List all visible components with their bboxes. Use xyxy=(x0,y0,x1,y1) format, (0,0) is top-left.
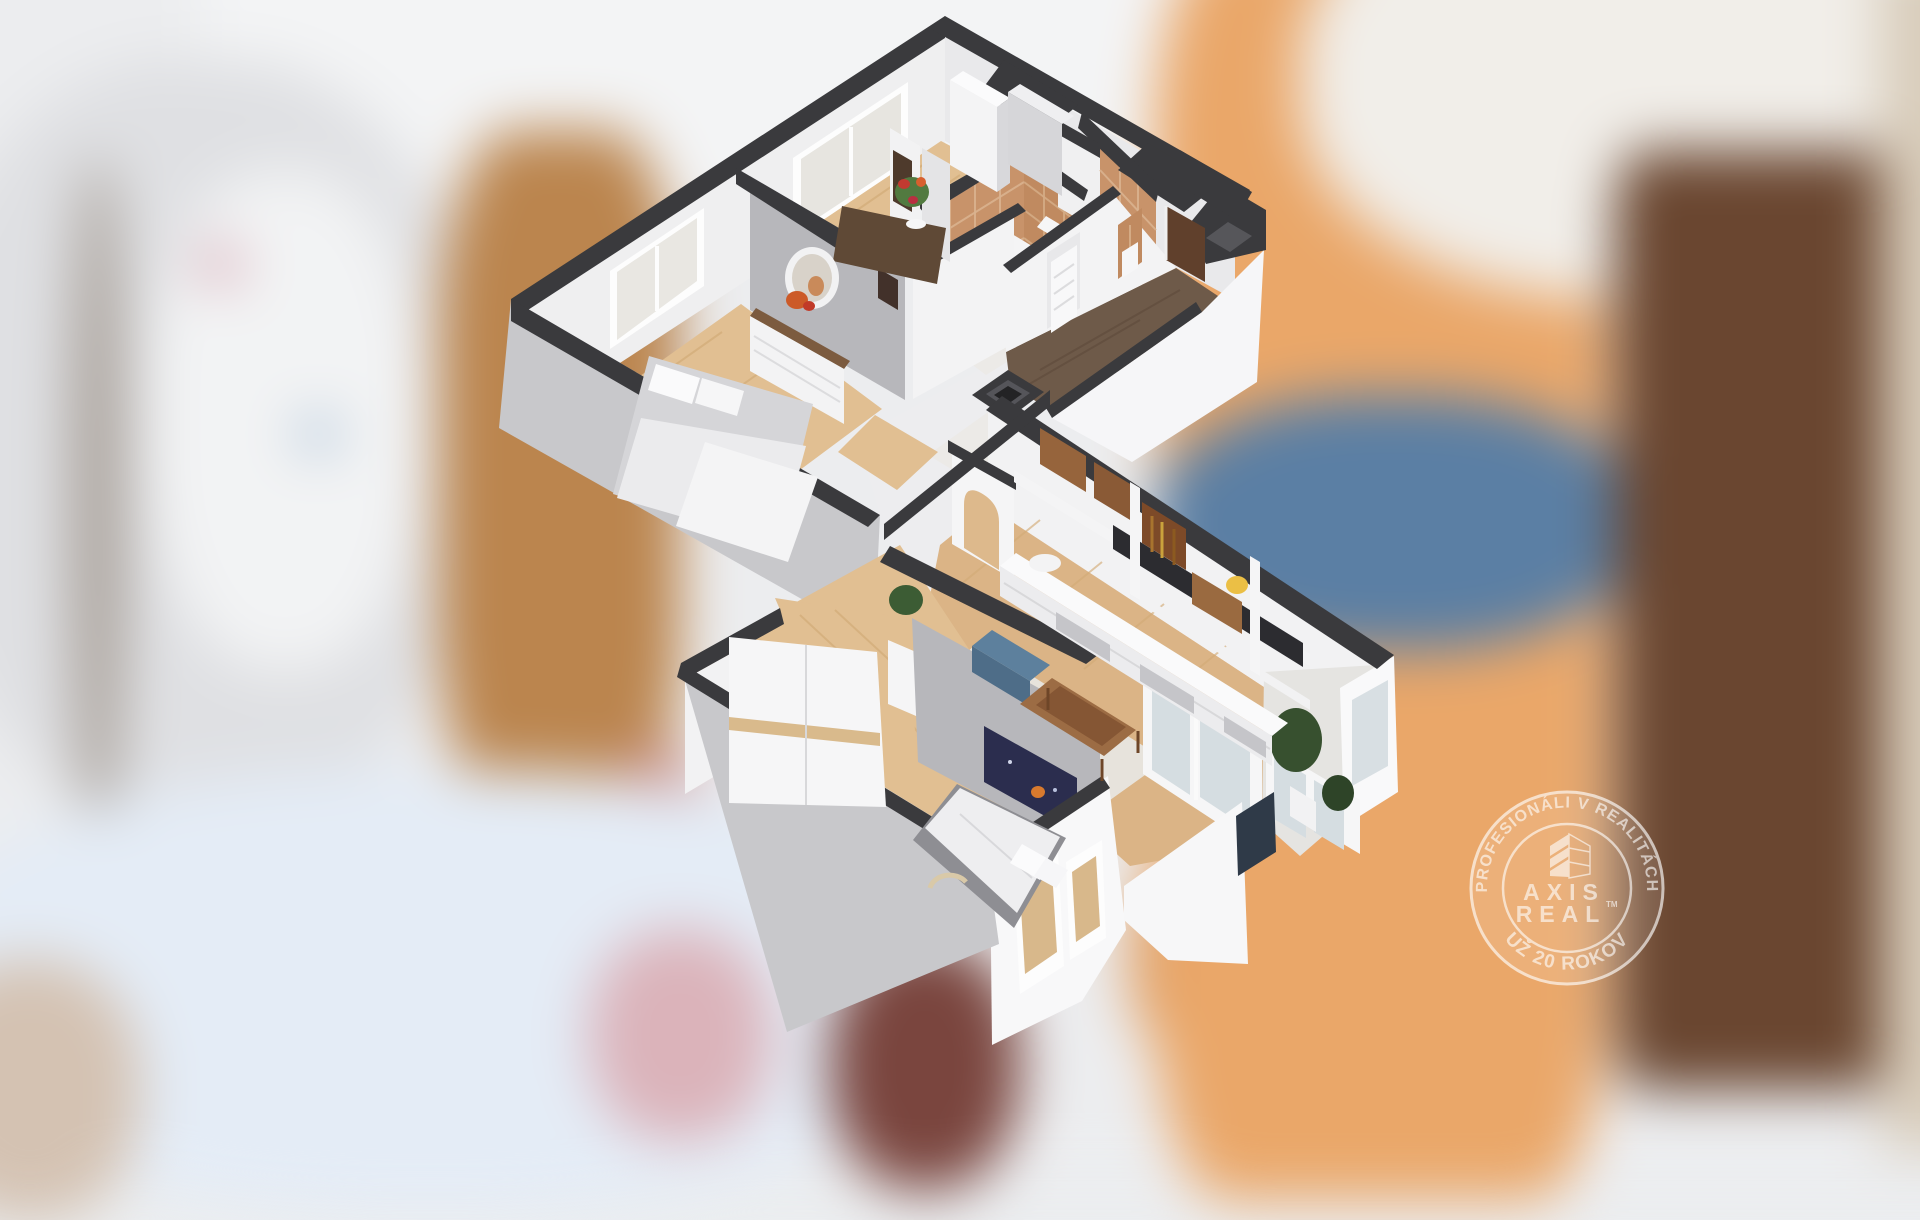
svg-text:TM: TM xyxy=(1606,900,1618,909)
svg-text:REAL: REAL xyxy=(1516,901,1607,927)
